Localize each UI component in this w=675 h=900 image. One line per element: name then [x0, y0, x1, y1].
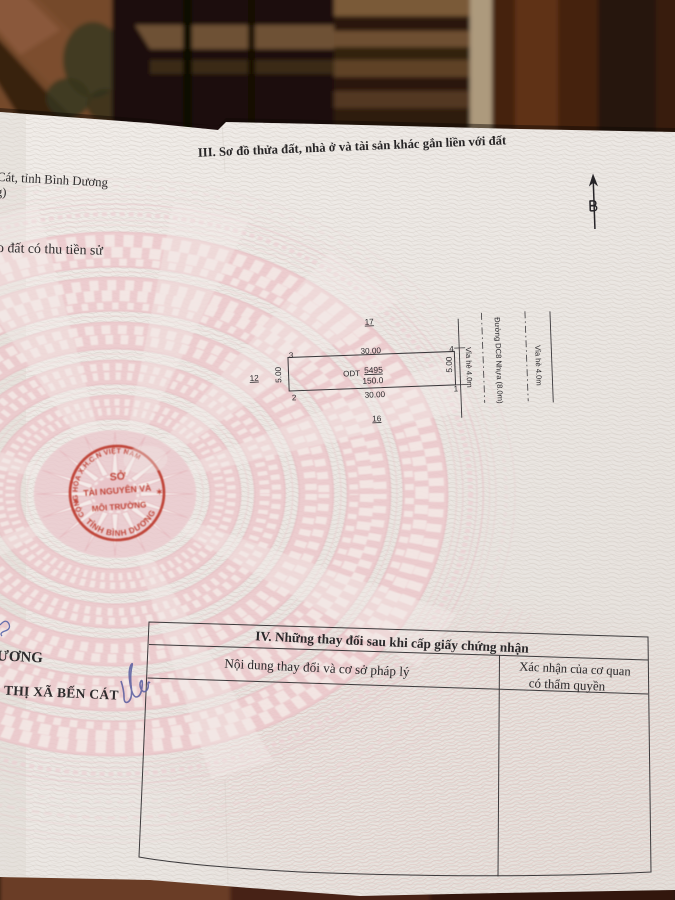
svg-text:Vỉa hè 4.0m: Vỉa hè 4.0m	[533, 345, 543, 386]
svg-text:5.00: 5.00	[445, 356, 455, 373]
svg-text:12: 12	[249, 374, 259, 383]
svg-text:SỞ: SỞ	[109, 469, 126, 483]
svg-text:30.00: 30.00	[364, 390, 385, 400]
svg-text:30.00: 30.00	[360, 346, 381, 356]
svg-text:5.00: 5.00	[274, 366, 284, 383]
svg-text:o đất có thu tiền sử: o đất có thu tiền sử	[0, 241, 104, 259]
svg-text:150.0: 150.0	[362, 375, 384, 386]
svg-text:17: 17	[364, 317, 374, 326]
svg-text:5495: 5495	[364, 365, 383, 376]
svg-text:DƯƠNG: DƯƠNG	[0, 648, 44, 666]
svg-text:16: 16	[372, 414, 382, 423]
svg-text:✶: ✶	[72, 497, 80, 507]
svg-text:g): g)	[0, 185, 7, 200]
svg-text:✶: ✶	[156, 487, 164, 497]
svg-text:ODT: ODT	[343, 369, 360, 379]
svg-text:Vỉa hè 4.0m: Vỉa hè 4.0m	[464, 347, 474, 388]
